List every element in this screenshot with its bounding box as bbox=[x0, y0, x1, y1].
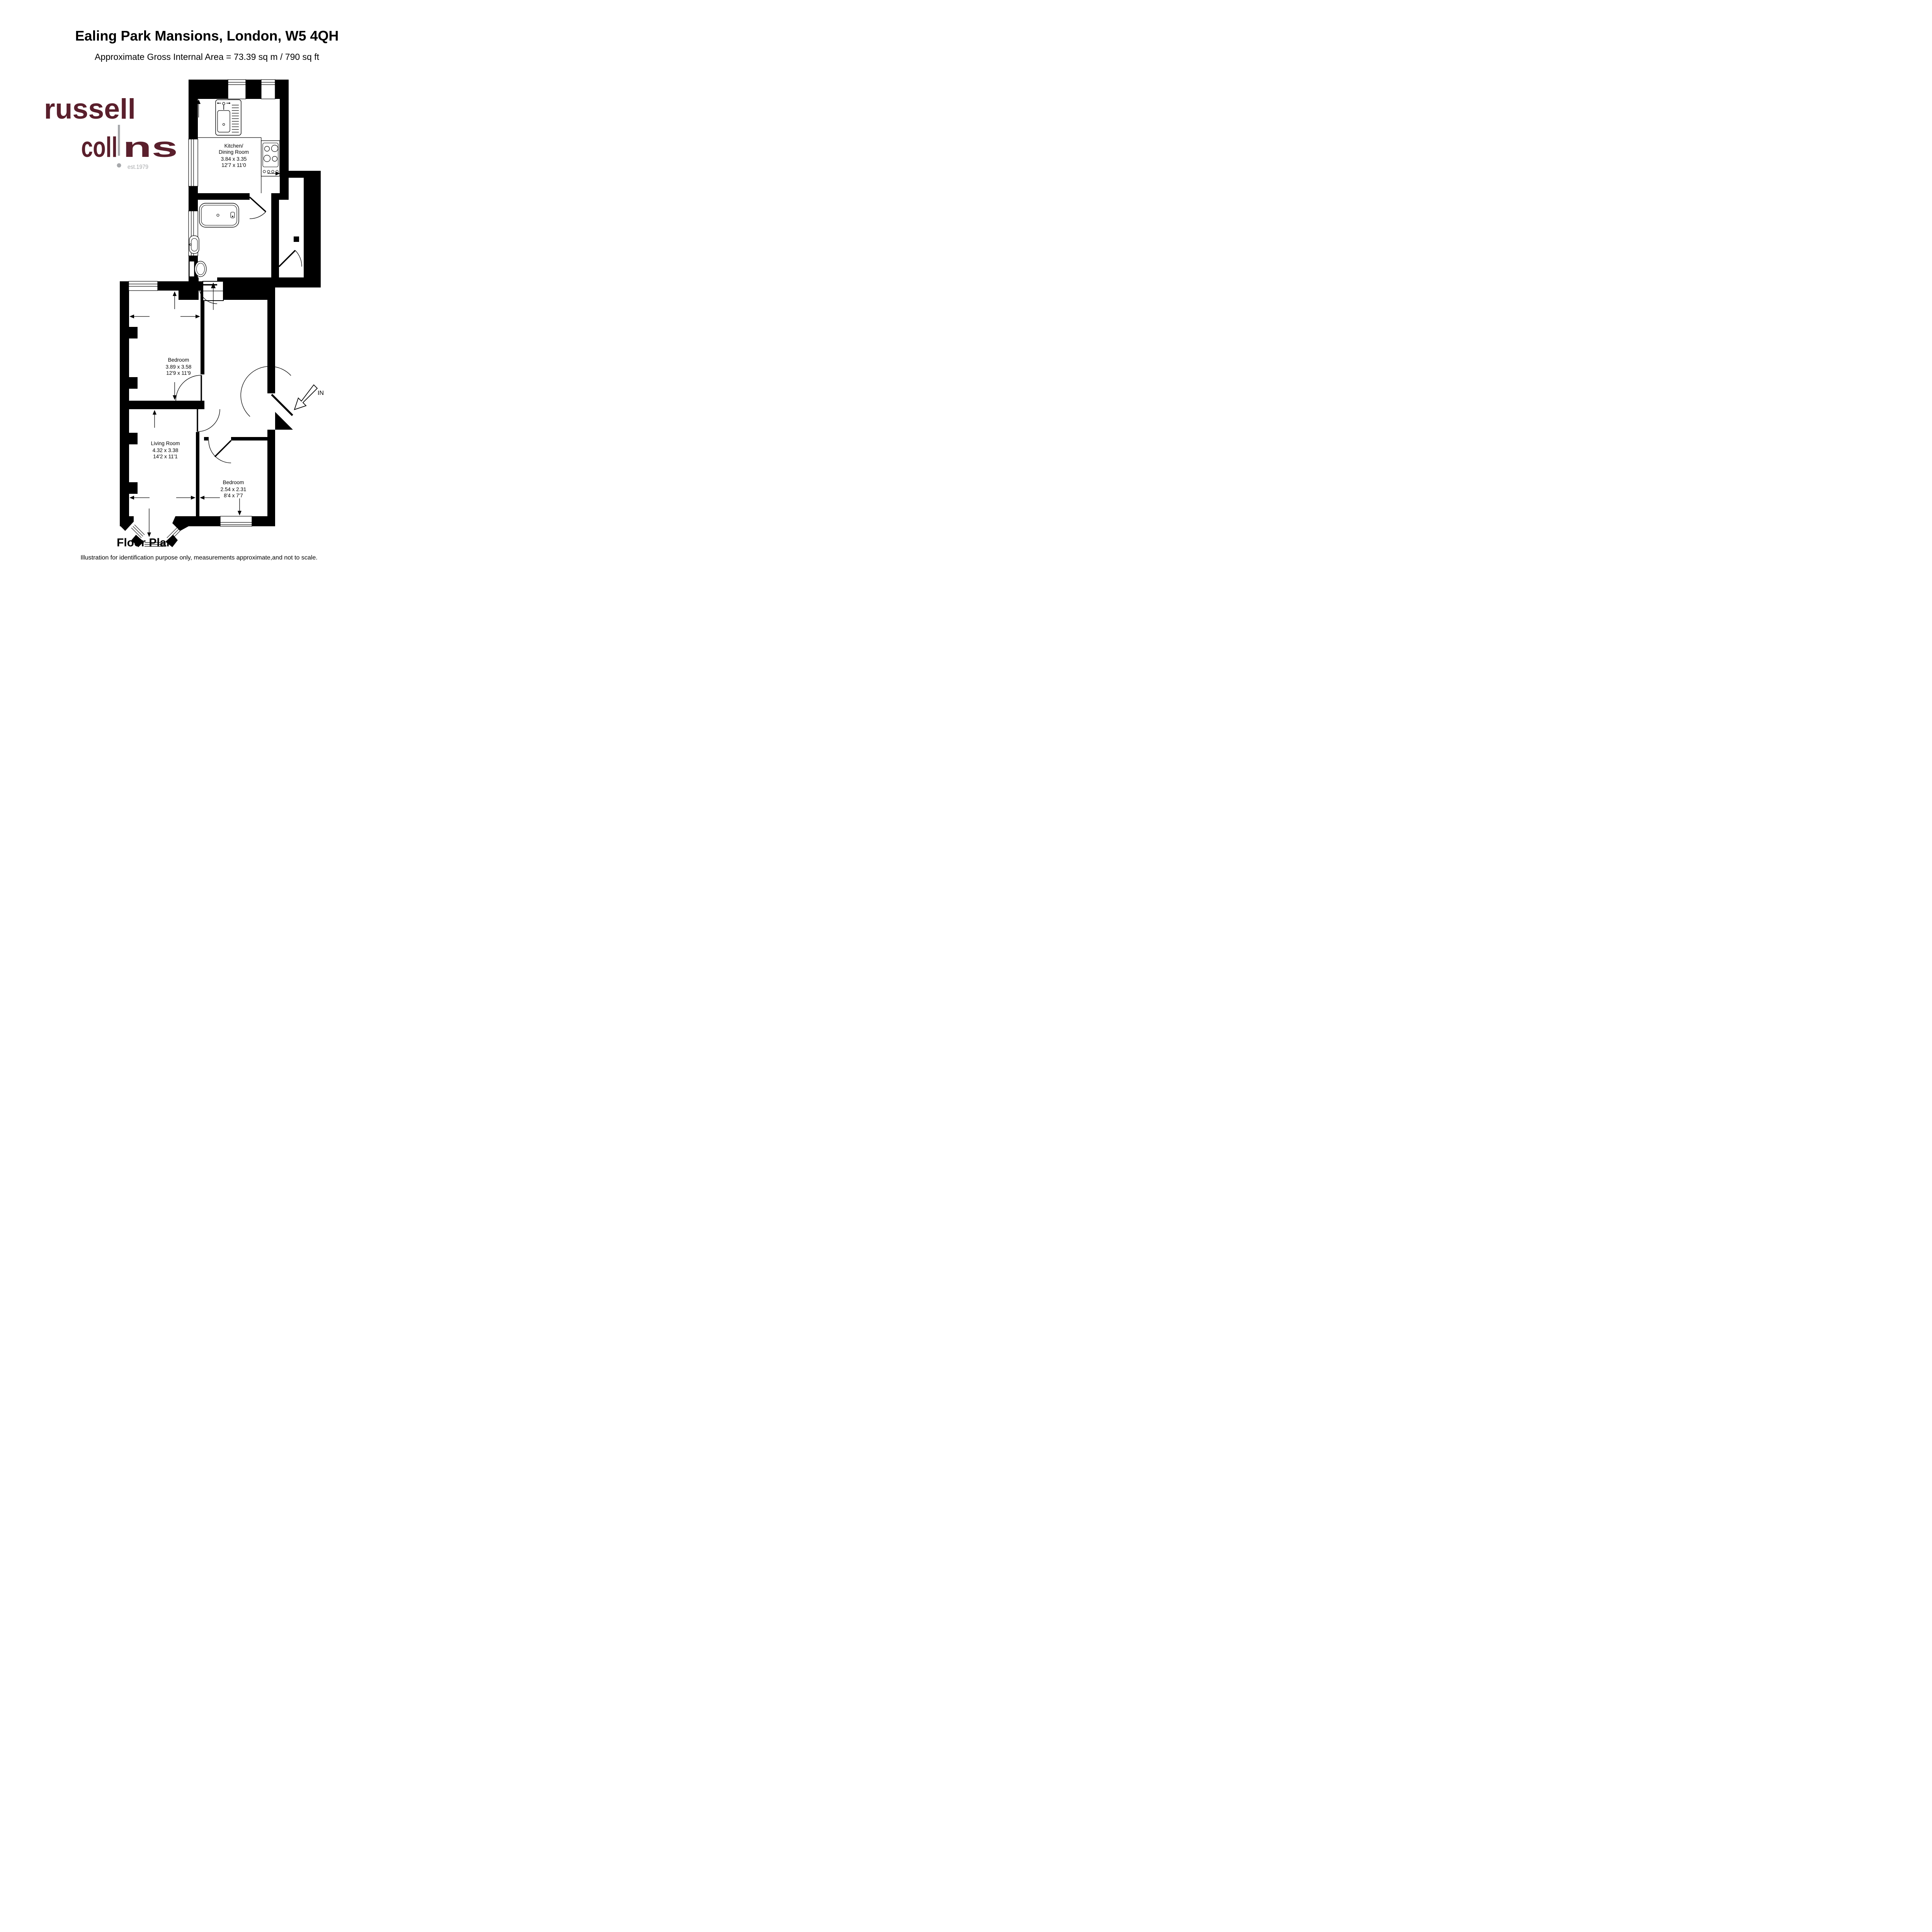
logo-coll: coll bbox=[81, 132, 117, 163]
svg-text:2.54 x 2.31: 2.54 x 2.31 bbox=[221, 486, 247, 492]
svg-text:12'9 x 11'9: 12'9 x 11'9 bbox=[166, 370, 190, 376]
wall-wing-bottom bbox=[271, 277, 321, 287]
floorplan-heading: Floor Plan bbox=[117, 536, 173, 549]
wall-hall-right bbox=[267, 286, 275, 387]
chimney-breast-1 bbox=[129, 327, 138, 338]
wall-bed1-living-divider bbox=[120, 401, 204, 409]
chimney-breast-3 bbox=[129, 433, 138, 444]
arrow-living-up bbox=[153, 410, 156, 428]
toilet-symbol bbox=[189, 261, 206, 277]
arrow-bay-down bbox=[147, 509, 151, 537]
wall-bed1-top-right bbox=[158, 281, 203, 291]
kitchen-sink-symbol bbox=[216, 100, 241, 135]
entrance-indicator: IN bbox=[294, 385, 324, 410]
svg-text:3.84 x 3.35: 3.84 x 3.35 bbox=[221, 156, 247, 162]
steps bbox=[203, 281, 223, 310]
wall-bed1-right bbox=[201, 291, 204, 374]
wall-kitchen-bath-divider bbox=[198, 193, 250, 200]
chimney-breast-2 bbox=[129, 377, 138, 389]
entrance-post-top bbox=[267, 387, 275, 393]
window-kitchen-top-2 bbox=[261, 80, 275, 99]
disclaimer-text: Illustration for identification purpose … bbox=[80, 554, 317, 561]
wall-stub-upper bbox=[271, 193, 289, 200]
russell-collins-logo: russell coll ns est.1979 bbox=[44, 94, 178, 170]
door-lobby bbox=[279, 250, 302, 267]
svg-text:Kitchen/: Kitchen/ bbox=[224, 143, 243, 149]
wall-kitchen-right bbox=[280, 80, 289, 193]
floorplan-drawing: russell coll ns est.1979 bbox=[0, 0, 414, 586]
wall-bed2-bottom-left bbox=[199, 516, 220, 526]
wall-living-bottom-right bbox=[187, 516, 199, 526]
door-bedroom2 bbox=[209, 440, 231, 463]
wall-junction-right bbox=[223, 277, 271, 300]
hob-symbol bbox=[261, 141, 280, 176]
room-bedroom1-label: Bedroom 3.89 x 3.58 12'9 x 11'9 bbox=[166, 357, 192, 376]
arrow-bed1-right bbox=[180, 315, 200, 318]
chimney-breast-4 bbox=[129, 482, 138, 494]
svg-text:14'2 x 11'1: 14'2 x 11'1 bbox=[153, 454, 177, 459]
wall-wing-right bbox=[304, 171, 321, 287]
svg-text:Dining Room: Dining Room bbox=[219, 149, 249, 155]
entrance-post-bottom bbox=[275, 412, 293, 430]
wall-bed2-top-right bbox=[231, 437, 275, 440]
wall-bed2-top-left bbox=[204, 437, 209, 440]
window-kitchen-top-1 bbox=[228, 80, 246, 99]
svg-text:3.89 x 3.58: 3.89 x 3.58 bbox=[166, 364, 192, 370]
door-kitchen bbox=[250, 197, 266, 219]
room-bedroom2-label: Bedroom 2.54 x 2.31 8'4 x 7'7 bbox=[221, 480, 247, 498]
svg-text:4.32 x 3.38: 4.32 x 3.38 bbox=[153, 447, 179, 453]
arrow-bed2-left bbox=[200, 496, 220, 500]
svg-text:Bedroom: Bedroom bbox=[223, 480, 244, 485]
logo-i-bar bbox=[118, 125, 120, 156]
dimension-arrows bbox=[129, 99, 280, 537]
door-living-room bbox=[197, 409, 220, 432]
window-bedroom2-bottom bbox=[220, 516, 252, 526]
logo-ns: ns bbox=[123, 132, 178, 163]
logo-russell: russell bbox=[44, 94, 136, 125]
room-living-label: Living Room 4.32 x 3.38 14'2 x 11'1 bbox=[151, 440, 180, 459]
entrance-arrow-icon bbox=[294, 385, 317, 410]
window-kitchen-left bbox=[189, 139, 198, 186]
wall-living-bed2-divider bbox=[196, 432, 199, 516]
arrow-living-right bbox=[176, 496, 196, 500]
arrow-living-left bbox=[129, 496, 150, 500]
wall-bed2-right bbox=[267, 430, 275, 516]
svg-text:12'7 x 11'0: 12'7 x 11'0 bbox=[221, 162, 246, 168]
arrow-bed1-left bbox=[129, 315, 150, 318]
basin-symbol bbox=[189, 236, 199, 253]
arrow-bed2-down bbox=[238, 498, 241, 515]
wall-bath-right bbox=[271, 200, 279, 277]
wall-bed2-bottom-right bbox=[252, 516, 275, 526]
room-kitchen-label: Kitchen/ Dining Room 3.84 x 3.35 12'7 x … bbox=[219, 143, 249, 168]
wall-lobby-stub bbox=[294, 236, 299, 242]
svg-text:Bedroom: Bedroom bbox=[168, 357, 189, 363]
arrow-bed1-up bbox=[173, 291, 177, 309]
svg-text:8'4 x 7'7: 8'4 x 7'7 bbox=[224, 493, 243, 498]
logo-est-1979: est.1979 bbox=[128, 164, 148, 170]
door-bedroom1 bbox=[176, 375, 201, 401]
window-bedroom1-top bbox=[129, 281, 158, 291]
bathtub-symbol bbox=[199, 203, 239, 227]
logo-i-dot bbox=[117, 163, 121, 168]
entrance-in-label: IN bbox=[318, 390, 324, 396]
svg-text:Living Room: Living Room bbox=[151, 440, 180, 446]
door-entrance bbox=[241, 366, 293, 417]
bay-post-left-outer bbox=[120, 516, 134, 531]
floorplan-page: Ealing Park Mansions, London, W5 4QH App… bbox=[0, 0, 414, 586]
bay-post-right-outer bbox=[172, 516, 189, 531]
